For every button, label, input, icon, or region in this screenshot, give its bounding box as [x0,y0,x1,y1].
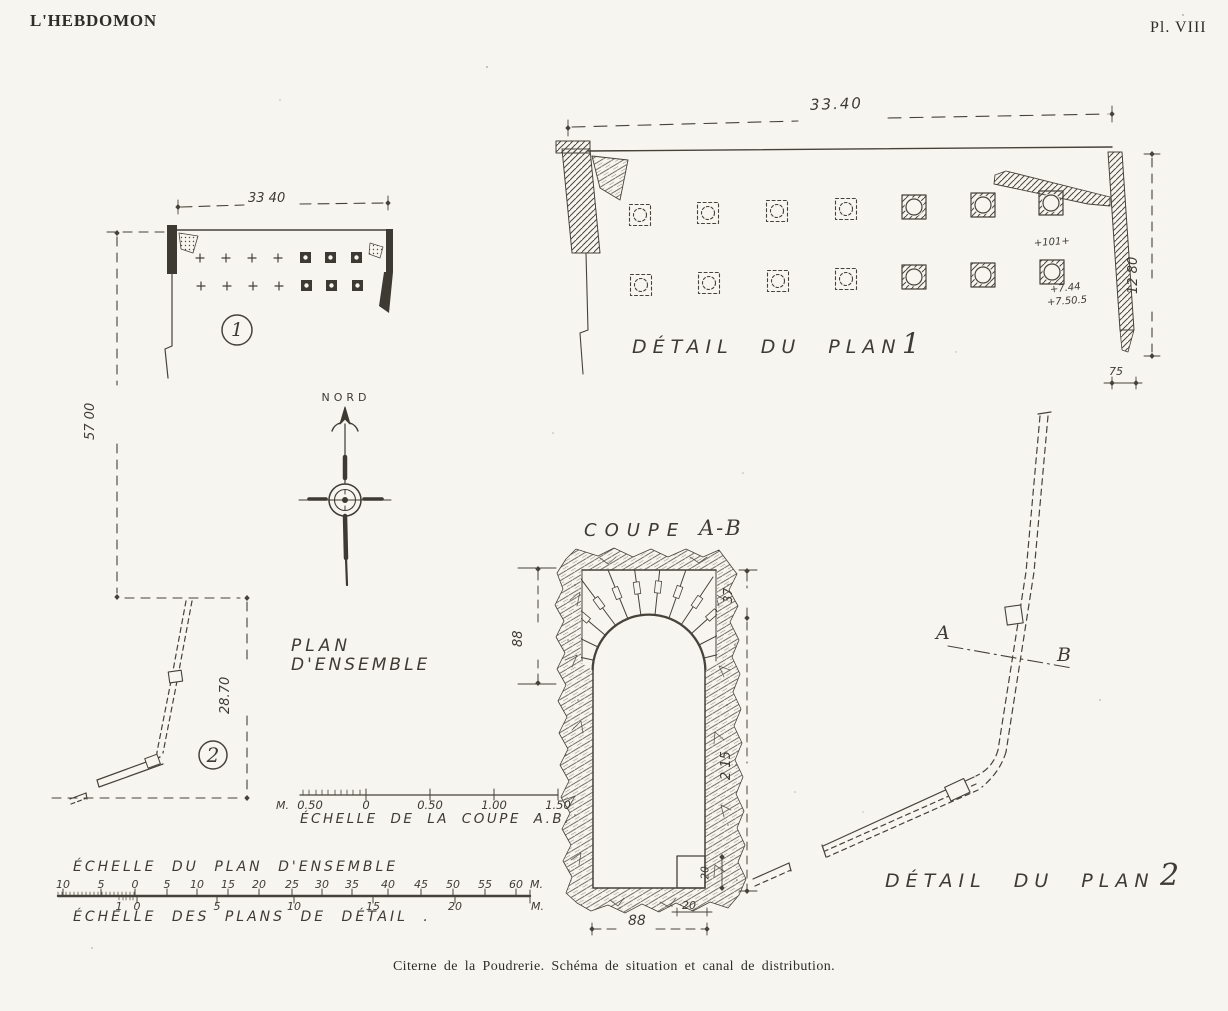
detail2-title: DÉTAIL DU PLAN [885,872,1155,891]
detail1-width-dim: 33.40 [810,96,863,113]
detail1-title: DÉTAIL DU PLAN [632,338,902,357]
north-label: NORD [322,392,371,403]
overview-canal-dim: 28.70 [219,677,232,714]
plan2-badge: 2 [207,745,220,765]
coupe-height-dim: 2 15 [720,751,733,780]
section-point-a: A [936,624,950,643]
plate-number: Pl. VIII [1150,20,1207,36]
detail1-wall-dim: 75 [1109,366,1123,377]
coupe-scale-tick: 1.00 [481,800,507,812]
overview-canal [70,601,227,804]
section-point-b: B [1057,646,1071,665]
overview-columns [300,252,363,291]
coupe-scale-caption: ÉCHELLE DE LA COUPE A.B. [300,813,571,827]
detail-plan-2-canal [753,412,1072,886]
coupe-scale-tick: 0.50 [417,800,443,812]
coupe-step-height-dim: 20 [701,866,712,879]
overview-column-crosses [196,254,283,290]
overview-title-line2: D'ENSEMBLE [291,657,430,674]
plan1-badge: 1 [231,321,243,340]
coupe-scale-unit: M. [276,800,289,811]
coupe-width-dim: 88 [628,914,646,928]
ensemble-scale-title: ÉCHELLE DU PLAN D'ENSEMBLE [73,860,398,874]
ensemble-tick: 15 [221,879,235,890]
coupe-chamber [593,615,705,888]
figure-caption: Citerne de la Poudrerie. Schéma de situa… [393,960,835,974]
ensemble-tick: 5 [98,879,105,890]
ensemble-tick: 30 [315,879,329,890]
coupe-scale-tick: 0 [362,800,369,812]
section-line-a-b [948,646,1072,668]
detail2-title-number: 2 [1160,861,1179,891]
ensemble-tick: 40 [381,879,395,890]
coupe-vault-dim: 88 [512,630,525,647]
coupe-crown-dim: 37 [722,588,734,603]
detail1-height-dim: 12 80 [1127,257,1140,294]
ensemble-tick: 50 [446,879,460,890]
coupe-title: COUPE [584,522,686,540]
ensemble-scale-unit: M. [530,879,543,890]
ensemble-tick: 5 [164,879,171,890]
ensemble-tick: 0 [132,879,139,890]
north-compass-icon [299,407,391,585]
detail-scale-title: ÉCHELLE DES PLANS DE DÉTAIL . [73,910,431,924]
ensemble-tick: 10 [190,879,204,890]
coupe-section-name: A-B [699,518,743,539]
ensemble-tick: 35 [345,879,359,890]
detail1-title-number: 1 [902,330,920,358]
ensemble-tick: 60 [509,879,523,890]
ensemble-tick: 55 [478,879,492,890]
ensemble-tick: 10 [56,879,70,890]
journal-title: L'HEBDOMON [30,12,157,29]
overview-title-line1: PLAN [291,638,351,655]
detail1-ruined-columns [630,199,857,296]
detail-scale-unit: M. [531,901,544,912]
overview-site-height-dim: 57 00 [84,403,97,440]
coupe-step-width-dim: 20 [682,900,696,911]
coupe-scale-tick: 1.50 [545,800,571,812]
detail-scale-tick: 20 [448,901,462,912]
overview-width-dim: 33 40 [248,192,285,205]
ensemble-tick: 25 [285,879,299,890]
coupe-scale-tick: 0.50 [297,800,323,812]
ensemble-tick: 20 [252,879,266,890]
overview-building-1 [165,225,393,378]
ensemble-tick: 45 [414,879,428,890]
plate-page: L'HEBDOMON Pl. VIII 33 40 57 00 28.70 1 … [0,0,1228,1011]
